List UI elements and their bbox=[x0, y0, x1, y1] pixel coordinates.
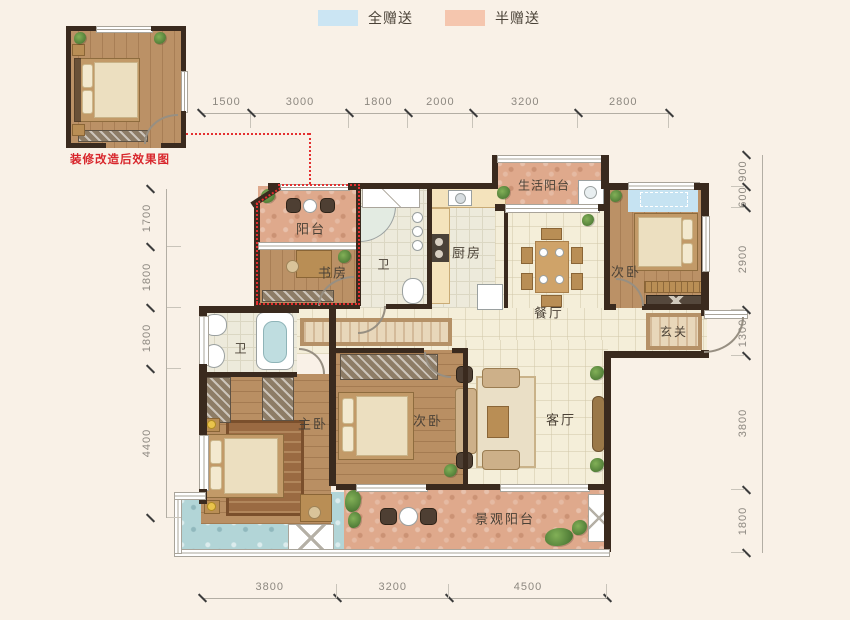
dim-segment: 1700 bbox=[150, 189, 166, 247]
dim-label: 2000 bbox=[408, 96, 473, 108]
legend-item-full-gift: 全赠送 bbox=[318, 8, 413, 28]
wall bbox=[463, 348, 468, 490]
wall bbox=[181, 26, 186, 71]
balcony-railing bbox=[174, 492, 182, 554]
view-balcony-label: 景观阳台 bbox=[475, 509, 535, 528]
toilet bbox=[402, 278, 424, 304]
dim-segment: 2900 bbox=[746, 208, 762, 310]
pillow bbox=[342, 398, 354, 424]
dim-label: 3800 bbox=[737, 400, 749, 446]
bath-shelf bbox=[412, 240, 423, 251]
dim-segment: 3200 bbox=[473, 96, 578, 113]
dim-segment: 4400 bbox=[150, 369, 166, 518]
service-balcony-label: 生活阳台 bbox=[518, 177, 570, 194]
balcony-chair bbox=[380, 508, 397, 525]
balcony-table bbox=[303, 199, 317, 213]
wall bbox=[386, 304, 432, 309]
window bbox=[500, 484, 590, 492]
inset-wardrobe bbox=[78, 130, 148, 142]
inset-nightstand bbox=[72, 44, 85, 56]
pillow bbox=[210, 466, 222, 490]
master-wardrobe bbox=[203, 377, 231, 423]
sink-basin bbox=[455, 193, 466, 204]
wall bbox=[608, 351, 709, 358]
wall bbox=[336, 348, 424, 353]
gift-outline bbox=[256, 203, 258, 303]
dim-segment: 3200 bbox=[337, 581, 449, 598]
stove-burner bbox=[435, 250, 443, 258]
bathtub-water bbox=[263, 321, 287, 363]
dim-tick bbox=[742, 548, 751, 557]
master-wardrobe bbox=[262, 377, 294, 421]
dim-label: 2800 bbox=[578, 96, 669, 108]
wall bbox=[464, 484, 500, 490]
bath-main-label: 卫 bbox=[377, 256, 390, 273]
dimensions-bottom: 380032004500 bbox=[203, 581, 607, 599]
bedroom-mid-wardrobe bbox=[340, 354, 438, 380]
living-label: 客厅 bbox=[546, 410, 576, 429]
lamp bbox=[207, 420, 216, 429]
bath-shelf bbox=[412, 226, 423, 237]
balcony-label: 阳台 bbox=[296, 219, 326, 238]
dim-tick bbox=[146, 513, 155, 522]
bedroom-mid-label: 次卧 bbox=[413, 411, 443, 430]
lamp bbox=[207, 502, 216, 511]
gift-outline bbox=[256, 303, 360, 305]
dim-label: 1300 bbox=[737, 310, 749, 356]
dim-segment: 600 bbox=[746, 187, 762, 208]
foyer-rug: 玄关 bbox=[646, 313, 702, 350]
ac-platform bbox=[288, 524, 334, 552]
wall bbox=[329, 306, 336, 486]
full-gift-swatch bbox=[318, 10, 358, 26]
balcony-railing bbox=[174, 549, 610, 557]
wall bbox=[604, 351, 611, 552]
window bbox=[356, 484, 428, 492]
bay-window-dash bbox=[640, 192, 688, 207]
place-setting bbox=[555, 275, 564, 284]
study-chair bbox=[286, 260, 299, 273]
dim-label: 1800 bbox=[349, 96, 408, 108]
inset-caption: 装修改造后效果图 bbox=[70, 151, 170, 167]
dimensions-right: 9006002900130038001800 bbox=[746, 155, 763, 553]
dining-label: 餐厅 bbox=[534, 303, 564, 322]
dim-label: 1700 bbox=[141, 195, 153, 241]
wall bbox=[427, 186, 432, 306]
dim-label: 1800 bbox=[737, 498, 749, 544]
wall bbox=[608, 304, 616, 310]
inset-window bbox=[181, 71, 188, 113]
balcony-chair bbox=[320, 198, 335, 213]
armchair bbox=[482, 368, 520, 388]
gift-outline bbox=[358, 184, 360, 305]
dimensions-top: 150030001800200032002800 bbox=[202, 96, 669, 114]
half-gift-swatch bbox=[445, 10, 485, 26]
balcony-slider bbox=[258, 242, 360, 250]
balcony-table bbox=[399, 507, 418, 526]
window bbox=[199, 316, 209, 366]
dim-segment: 1800 bbox=[349, 96, 408, 113]
window bbox=[199, 435, 209, 491]
armchair bbox=[482, 450, 520, 470]
dining-chair bbox=[521, 247, 533, 264]
wall bbox=[66, 26, 71, 148]
dim-segment: 1500 bbox=[202, 96, 251, 113]
wall bbox=[588, 484, 610, 490]
bedroom-top-dresser bbox=[644, 281, 702, 293]
dim-segment: 1300 bbox=[746, 310, 762, 356]
dining-slider bbox=[505, 204, 600, 213]
inset-renovation-plan bbox=[66, 26, 186, 148]
dimensions-left: 1700180018004400 bbox=[150, 189, 167, 518]
dim-label: 4500 bbox=[449, 581, 607, 593]
master-mattress bbox=[224, 438, 278, 494]
bay-window bbox=[628, 182, 700, 190]
washer-drum bbox=[584, 186, 597, 199]
master-bath-label: 卫 bbox=[234, 340, 247, 357]
dim-label: 1500 bbox=[202, 96, 251, 108]
inset-window bbox=[96, 26, 153, 33]
equipment-platform bbox=[362, 187, 420, 208]
balcony-chair bbox=[286, 198, 301, 213]
dim-segment: 1800 bbox=[150, 247, 166, 308]
dim-tick bbox=[665, 108, 674, 117]
dim-segment: 3000 bbox=[251, 96, 349, 113]
dim-segment: 2800 bbox=[578, 96, 669, 113]
wall bbox=[66, 26, 96, 31]
gift-outline bbox=[278, 184, 360, 186]
wall bbox=[504, 208, 508, 308]
window bbox=[497, 155, 605, 163]
full-gift-label: 全赠送 bbox=[368, 8, 413, 28]
dim-segment: 3800 bbox=[203, 581, 337, 598]
pillow bbox=[682, 243, 693, 264]
desk-chair bbox=[308, 506, 321, 519]
inset-nightstand bbox=[72, 124, 85, 136]
place-setting bbox=[539, 275, 548, 284]
legend-item-half-gift: 半赠送 bbox=[445, 8, 540, 28]
dim-label: 2900 bbox=[737, 236, 749, 282]
inset-pillow bbox=[82, 90, 93, 114]
wall bbox=[336, 484, 356, 490]
inset-bed-headboard bbox=[74, 58, 81, 122]
gift-connector-line bbox=[309, 133, 311, 188]
half-gift-label: 半赠送 bbox=[495, 8, 540, 28]
window bbox=[702, 216, 710, 272]
wall bbox=[495, 204, 505, 211]
dim-segment: 2000 bbox=[408, 96, 473, 113]
place-setting bbox=[555, 248, 564, 257]
floorplan-canvas: 全赠送 半赠送 装修改造后效果图 bbox=[0, 0, 850, 620]
dining-chair bbox=[541, 228, 562, 240]
pillow bbox=[682, 219, 693, 240]
bath-shelf bbox=[412, 212, 423, 223]
dim-tick bbox=[603, 593, 612, 602]
dim-label: 1800 bbox=[141, 254, 153, 300]
kitchen-label: 厨房 bbox=[452, 243, 482, 262]
wall bbox=[642, 304, 706, 310]
gift-connector-line bbox=[186, 133, 309, 135]
dim-segment: 4500 bbox=[449, 581, 607, 598]
pillow bbox=[210, 440, 222, 464]
dining-chair bbox=[571, 273, 583, 290]
coffee-table bbox=[487, 406, 509, 438]
wall bbox=[426, 484, 468, 490]
bedroom-top-mattress bbox=[638, 217, 682, 267]
wall bbox=[66, 143, 106, 148]
foyer-label: 玄关 bbox=[660, 323, 688, 340]
dim-label: 3000 bbox=[251, 96, 349, 108]
dim-label: 3200 bbox=[473, 96, 578, 108]
balcony-chair bbox=[420, 508, 437, 525]
bedroom-mid-mattress bbox=[356, 396, 408, 456]
dim-label: 3200 bbox=[337, 581, 449, 593]
dim-segment: 3800 bbox=[746, 356, 762, 490]
dim-label: 4400 bbox=[141, 420, 153, 466]
inset-bed-mattress bbox=[94, 62, 138, 118]
dim-segment: 1800 bbox=[746, 490, 762, 553]
inset-pillow bbox=[82, 64, 93, 88]
wall bbox=[201, 372, 297, 377]
study-label: 书房 bbox=[318, 263, 348, 282]
balcony-railing bbox=[174, 492, 206, 500]
dining-chair bbox=[571, 247, 583, 264]
fridge bbox=[477, 284, 503, 310]
dim-segment: 1800 bbox=[150, 308, 166, 369]
place-setting bbox=[539, 248, 548, 257]
dim-label: 1800 bbox=[141, 315, 153, 361]
stove-burner bbox=[435, 238, 443, 246]
pillow bbox=[342, 426, 354, 452]
bedroom-top-label: 次卧 bbox=[611, 262, 641, 281]
wall bbox=[604, 186, 610, 310]
dim-label: 3800 bbox=[203, 581, 337, 593]
master-bedroom-label: 主卧 bbox=[298, 414, 328, 433]
dining-chair bbox=[521, 273, 533, 290]
